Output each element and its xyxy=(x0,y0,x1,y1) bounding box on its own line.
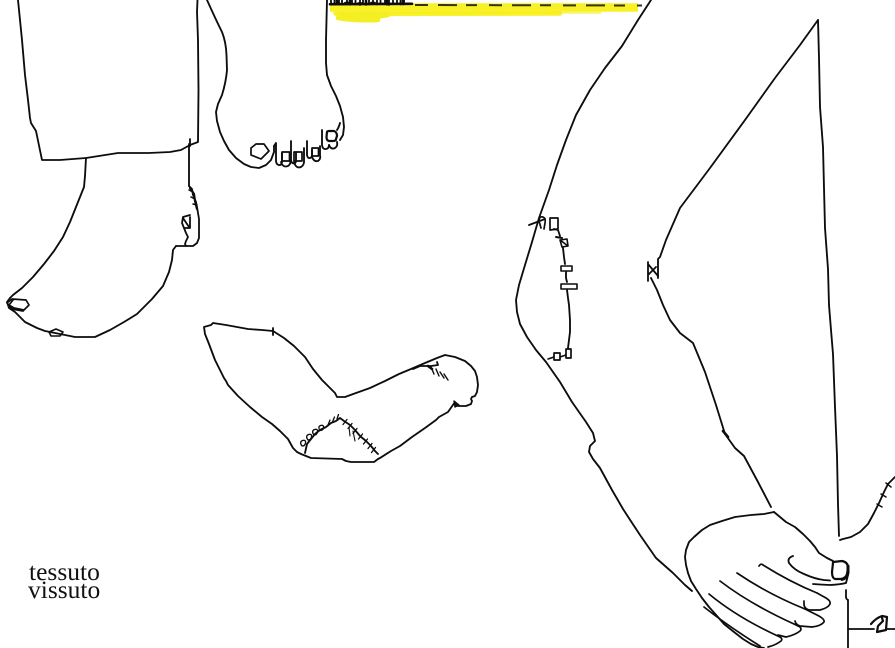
svg-text:vissuto: vissuto xyxy=(28,575,100,604)
